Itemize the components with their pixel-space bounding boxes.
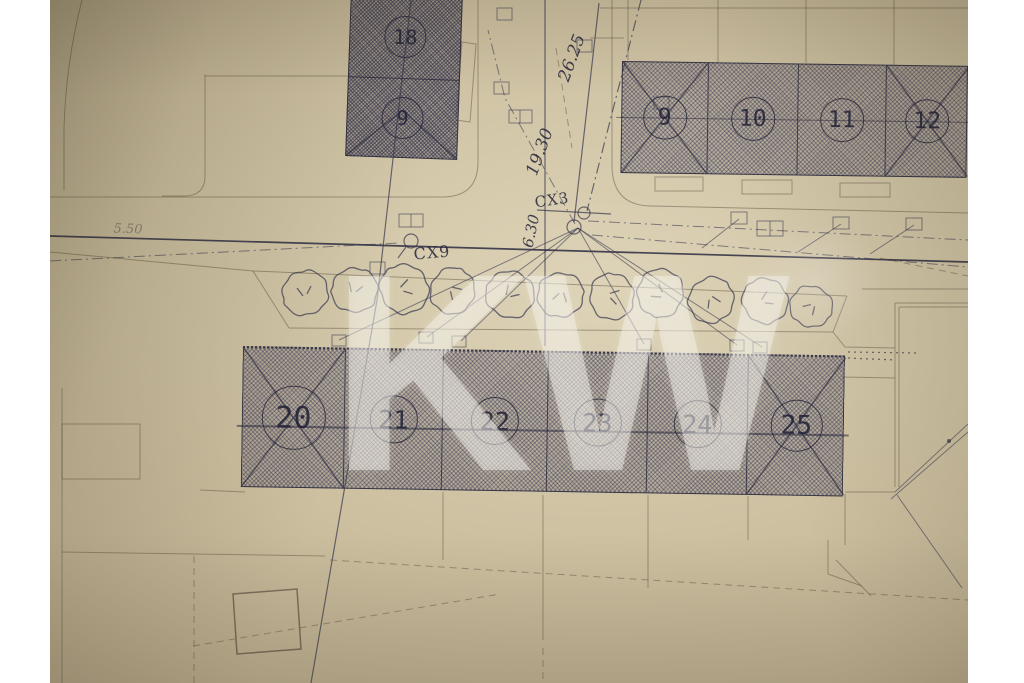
- kw-watermark: KW: [330, 232, 780, 514]
- photo-glare: [745, 222, 885, 342]
- dimension-label-5: 5.50: [98, 221, 158, 238]
- site-plan-photo: 18 9 9: [50, 0, 968, 683]
- screenshot: 18 9 9: [0, 0, 1024, 683]
